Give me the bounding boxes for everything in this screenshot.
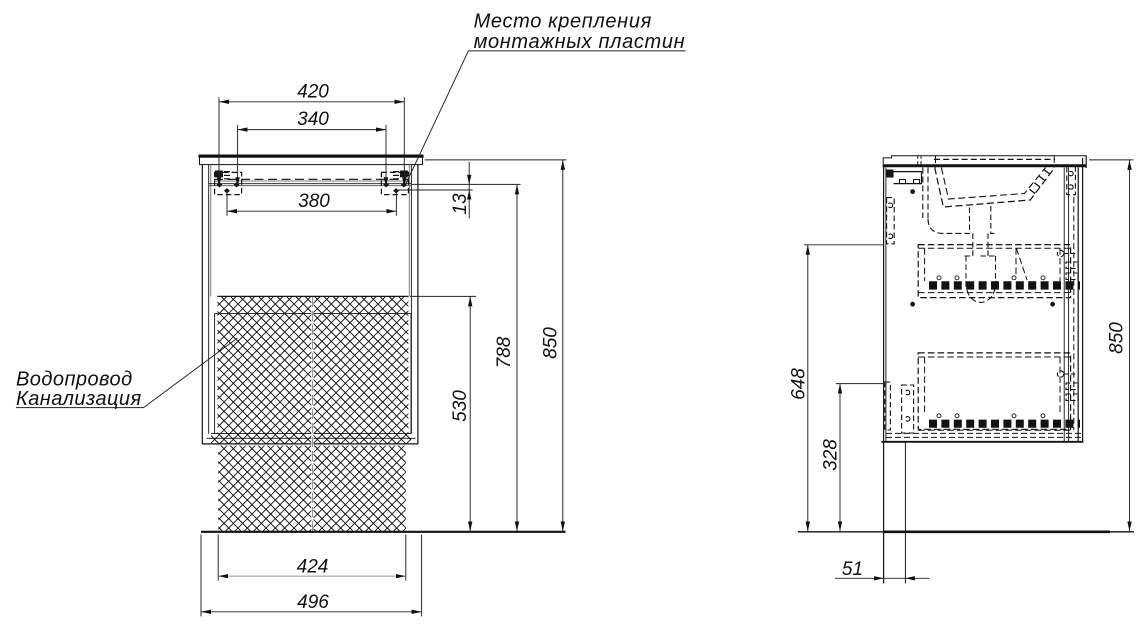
svg-text:420: 420 (297, 82, 329, 103)
svg-text:424: 424 (297, 556, 329, 577)
svg-text:13: 13 (450, 193, 471, 215)
svg-text:Место крепления: Место крепления (474, 11, 652, 33)
svg-text:монтажных пластин: монтажных пластин (474, 31, 686, 53)
svg-text:380: 380 (298, 191, 330, 212)
svg-text:648: 648 (789, 368, 810, 400)
svg-text:340: 340 (297, 109, 329, 130)
svg-text:850: 850 (1107, 322, 1128, 354)
svg-text:328: 328 (821, 439, 842, 471)
svg-text:496: 496 (297, 592, 329, 613)
svg-text:51: 51 (842, 559, 863, 580)
svg-text:530: 530 (450, 390, 471, 422)
svg-text:850: 850 (540, 327, 561, 359)
svg-text:Канализация: Канализация (16, 388, 142, 410)
svg-text:788: 788 (494, 336, 515, 368)
